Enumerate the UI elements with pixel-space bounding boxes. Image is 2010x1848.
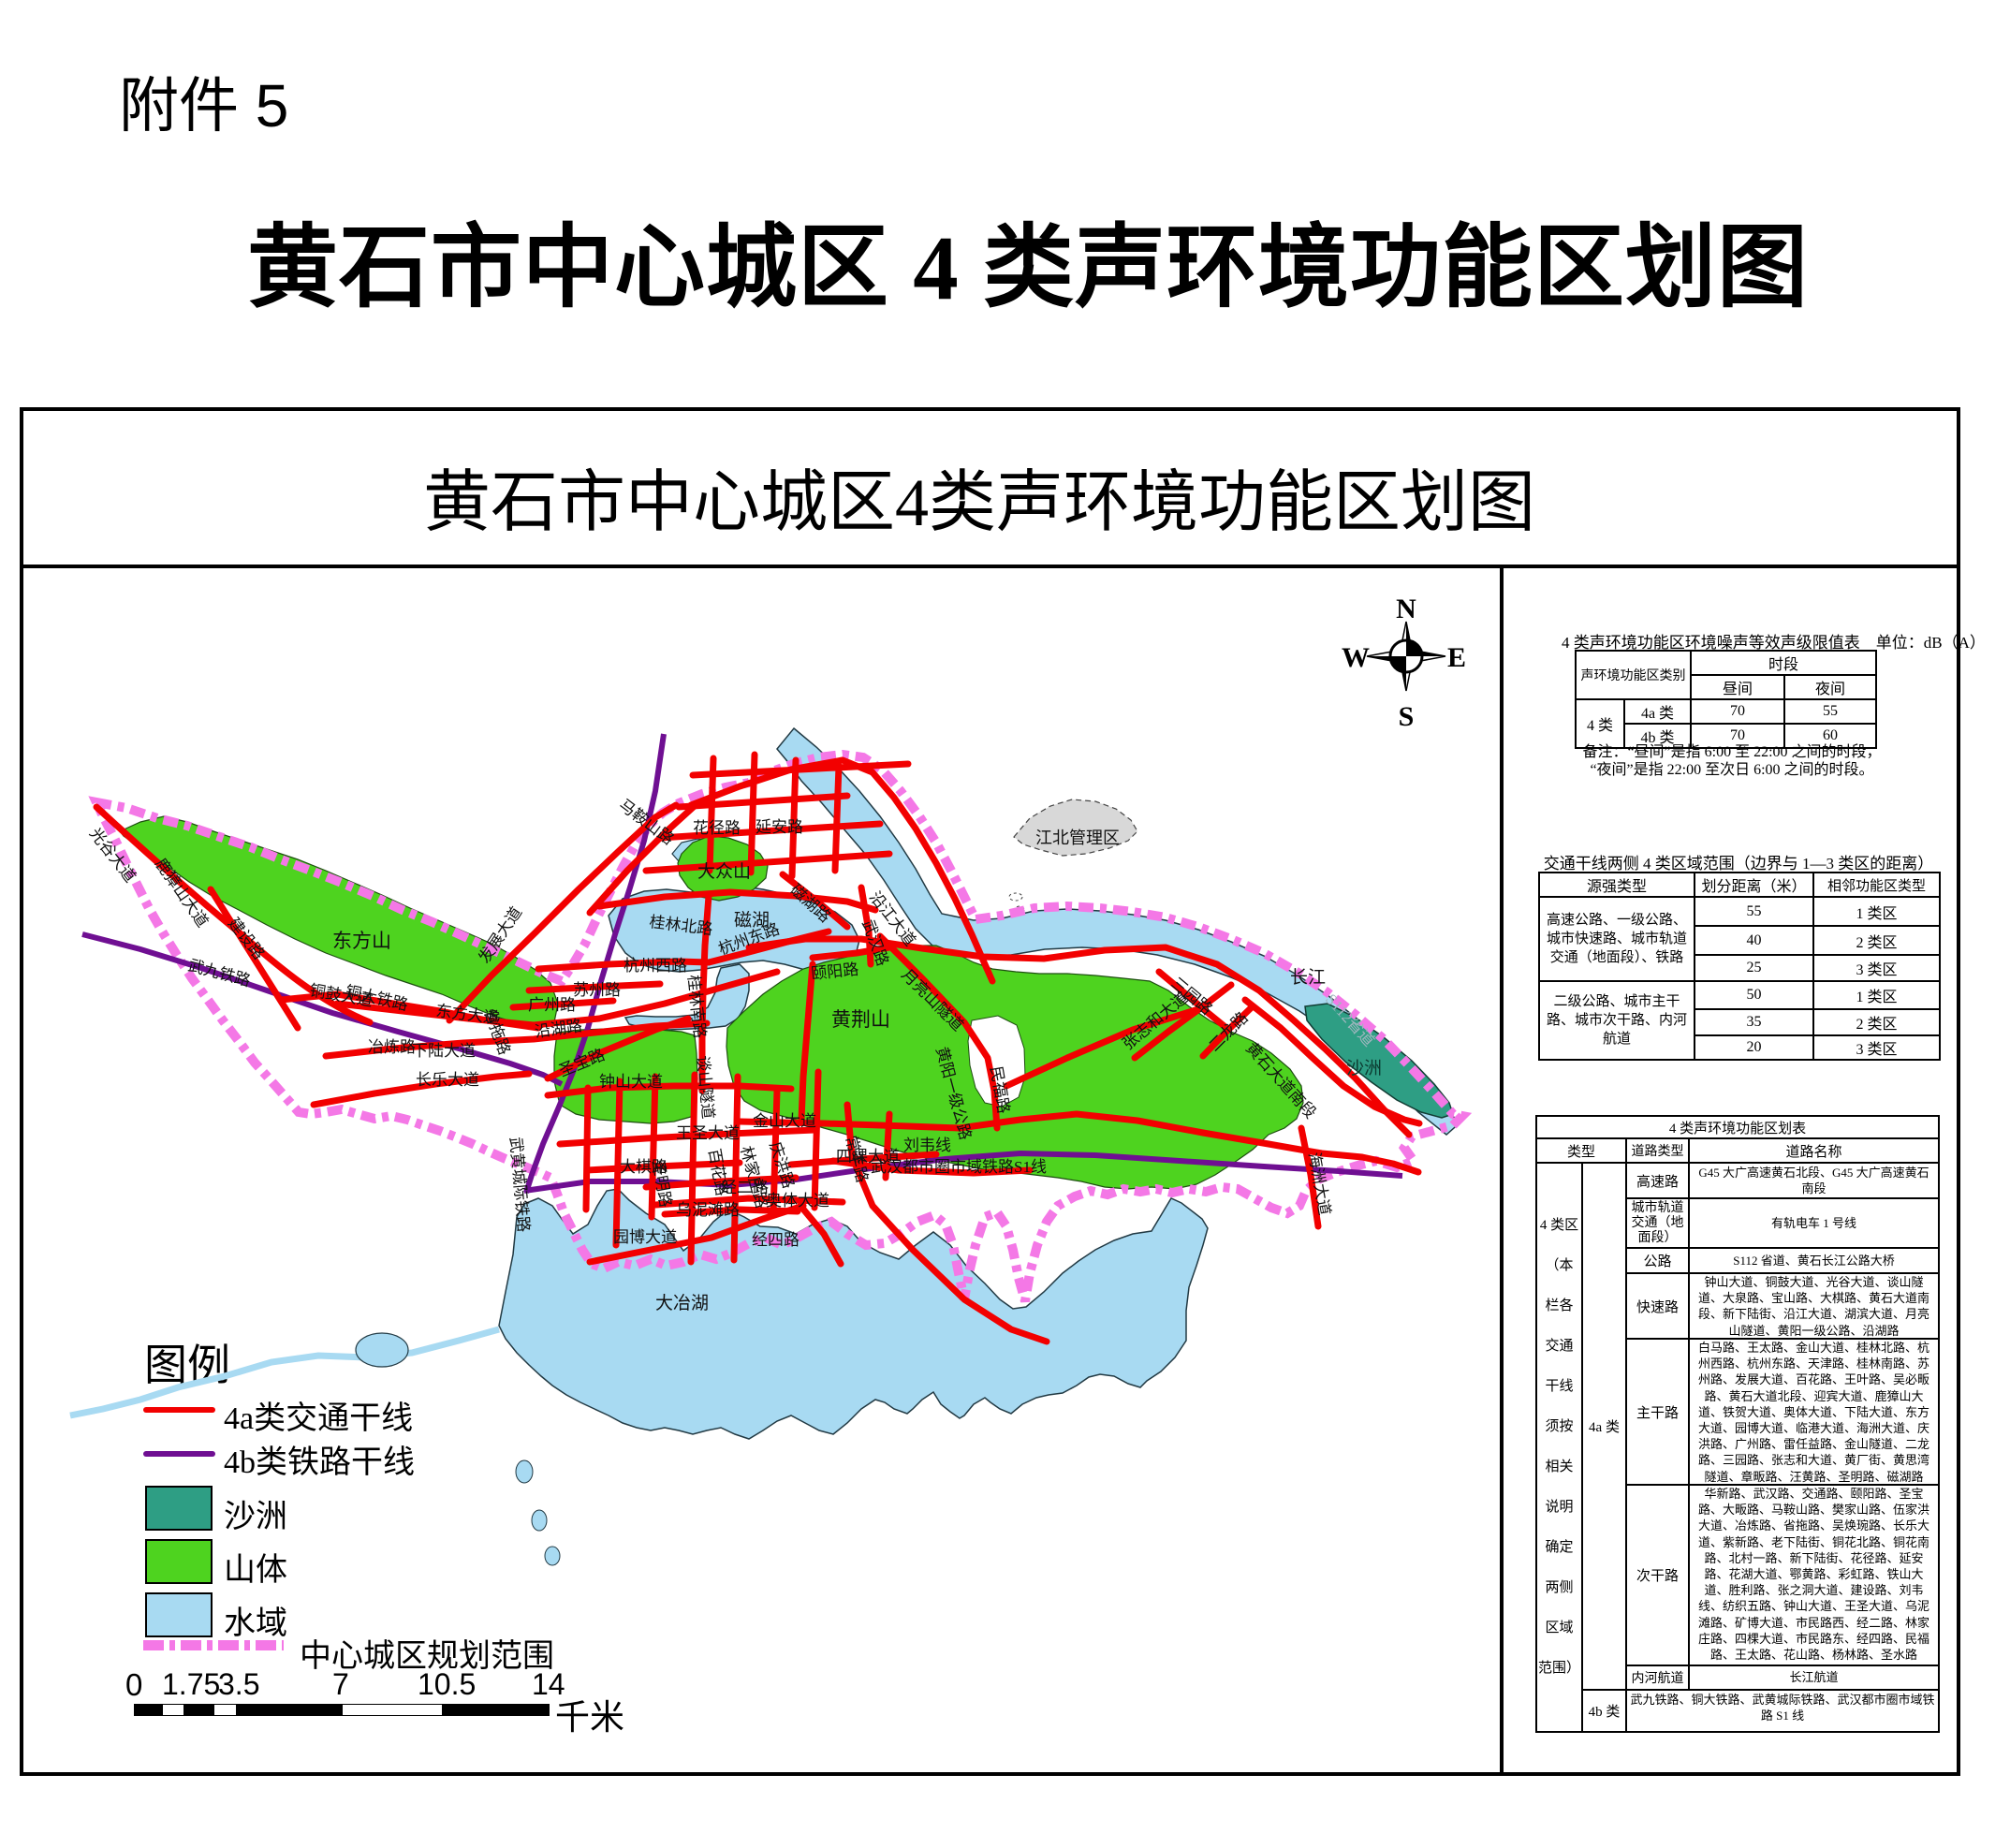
svg-text:沙洲: 沙洲	[1346, 1059, 1382, 1078]
svg-text:N: N	[1396, 594, 1416, 624]
svg-text:杭州西路: 杭州西路	[624, 957, 687, 975]
svg-text:园博大道: 园博大道	[613, 1228, 677, 1246]
svg-text:大众山: 大众山	[697, 861, 751, 882]
svg-text:江北管理区: 江北管理区	[1035, 829, 1120, 847]
svg-text:金山大道: 金山大道	[753, 1112, 816, 1130]
svg-text:武汉都市圈市域铁路S1线: 武汉都市圈市域铁路S1线	[871, 1158, 1047, 1176]
svg-text:W: W	[1342, 642, 1370, 673]
svg-text:长江: 长江	[1290, 967, 1326, 988]
svg-text:长乐大道: 长乐大道	[416, 1071, 479, 1089]
svg-text:冶炼路: 冶炼路	[368, 1038, 416, 1056]
svg-text:王圣大道: 王圣大道	[676, 1124, 740, 1142]
svg-text:黄荆山: 黄荆山	[831, 1008, 890, 1031]
svg-text:花径路: 花径路	[693, 819, 741, 837]
svg-text:刘韦线: 刘韦线	[903, 1137, 951, 1154]
svg-text:奥体大道: 奥体大道	[766, 1192, 829, 1210]
svg-text:乌泥滩路: 乌泥滩路	[676, 1201, 740, 1219]
svg-text:经二路: 经二路	[721, 1179, 769, 1196]
svg-text:经四路: 经四路	[752, 1231, 800, 1249]
svg-text:E: E	[1447, 642, 1466, 673]
svg-text:武九铁路: 武九铁路	[186, 957, 253, 990]
svg-text:武黄城际铁路: 武黄城际铁路	[506, 1137, 533, 1233]
svg-text:钟山大道: 钟山大道	[599, 1073, 663, 1091]
svg-text:延安路: 延安路	[756, 818, 803, 836]
svg-text:苏州路: 苏州路	[573, 981, 621, 999]
svg-text:东方山: 东方山	[332, 930, 391, 952]
svg-text:大冶湖: 大冶湖	[655, 1293, 709, 1313]
svg-text:下陆大道: 下陆大道	[412, 1042, 476, 1060]
svg-text:S: S	[1399, 701, 1415, 732]
svg-text:广州路: 广州路	[528, 996, 576, 1014]
